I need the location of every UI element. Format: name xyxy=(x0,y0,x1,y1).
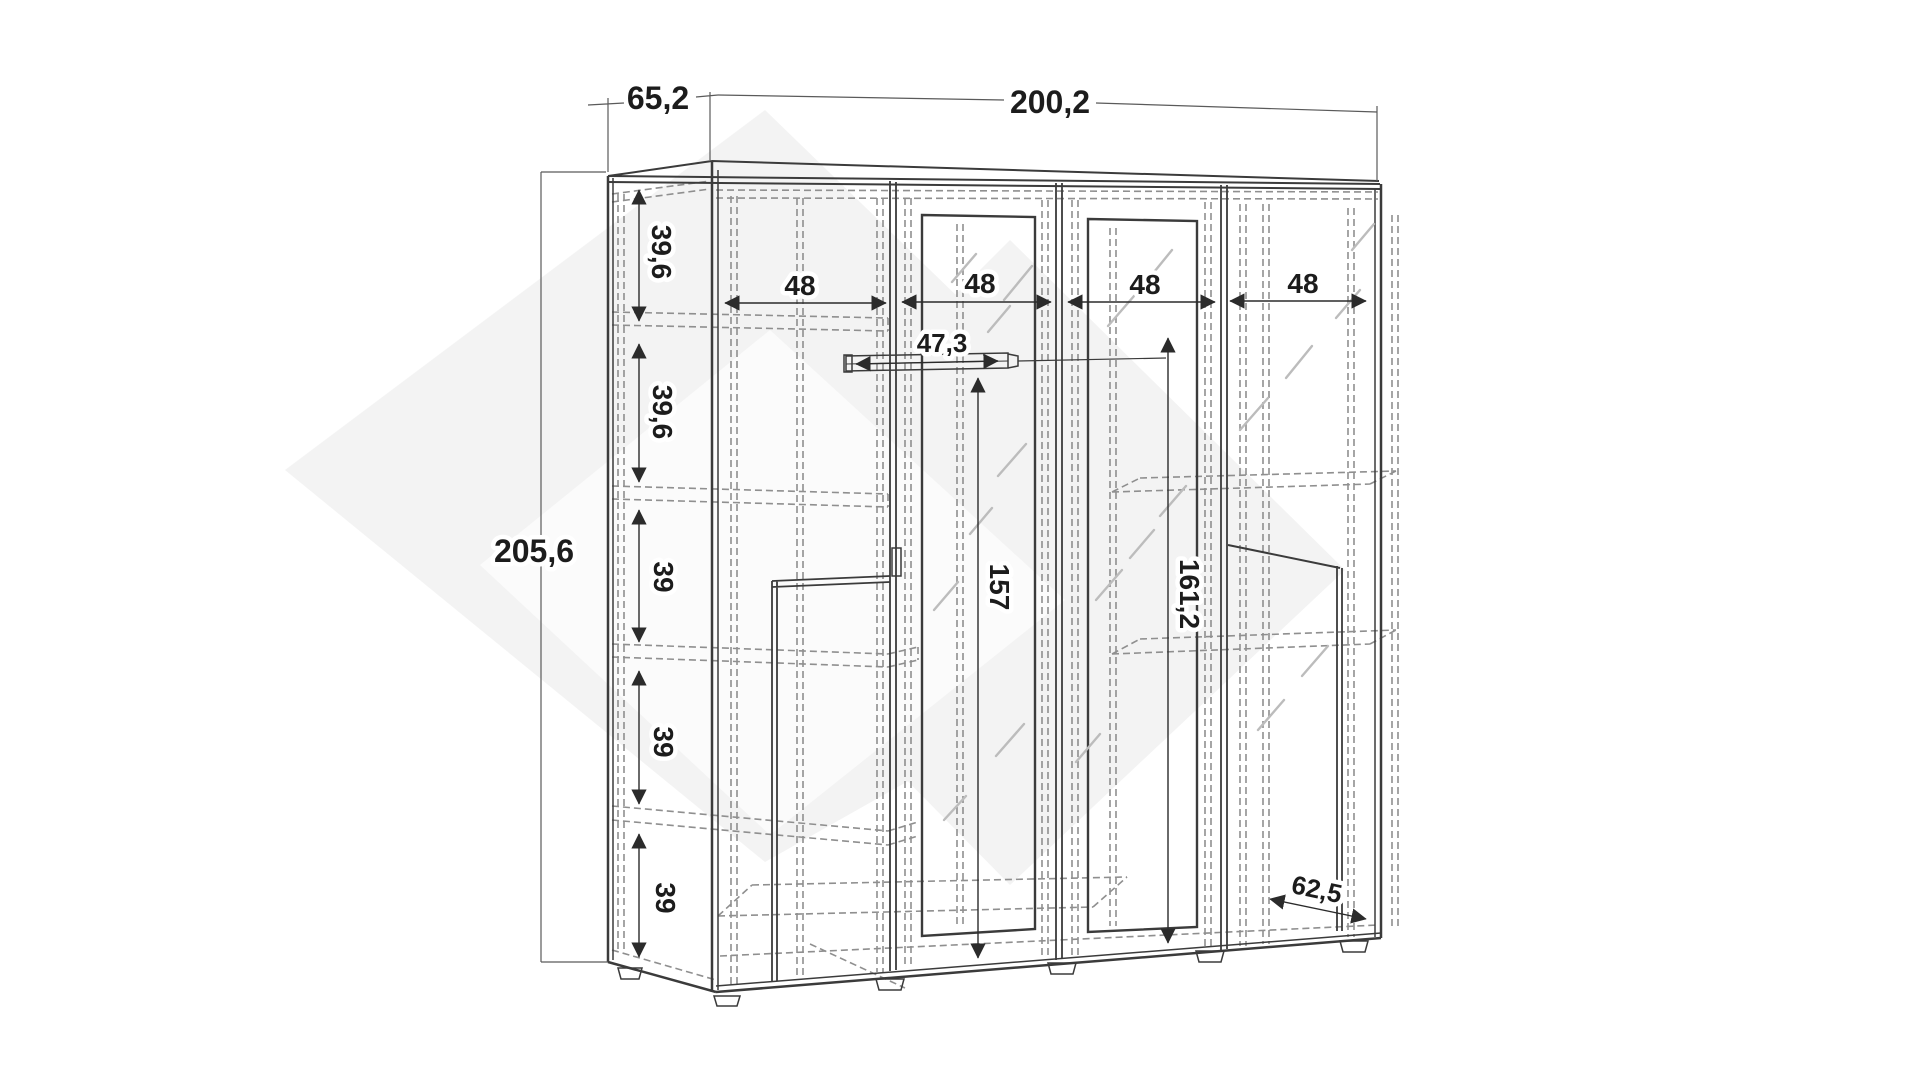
dim-rod-length: 47,3 xyxy=(917,328,968,358)
dim-left-section-3: 39 xyxy=(648,561,679,592)
dim-top-depth: 65,2 xyxy=(627,80,689,116)
dim-rod-height: 157 xyxy=(984,564,1015,611)
dim-total-height: 205,6 xyxy=(494,533,574,569)
dim-left-section-1: 39,6 xyxy=(646,225,677,280)
dim-compartment-3: 48 xyxy=(1129,269,1160,300)
dim-compartment-4: 48 xyxy=(1287,268,1318,299)
dim-left-section-2: 39,6 xyxy=(647,385,678,440)
diagram-canvas: 65,2 200,2 205,6 39,6 39,6 39 39 39 48 4… xyxy=(0,0,1920,1080)
watermark xyxy=(285,110,1345,885)
dim-compartment-1: 48 xyxy=(784,270,815,301)
wardrobe-dimension-diagram: 65,2 200,2 205,6 39,6 39,6 39 39 39 48 4… xyxy=(0,0,1920,1080)
dim-interior-height: 161,2 xyxy=(1174,559,1205,629)
dim-compartment-2: 48 xyxy=(964,268,995,299)
dim-left-section-4: 39 xyxy=(648,726,679,757)
dim-left-section-5: 39 xyxy=(650,882,681,913)
dim-total-width: 200,2 xyxy=(1010,84,1090,120)
